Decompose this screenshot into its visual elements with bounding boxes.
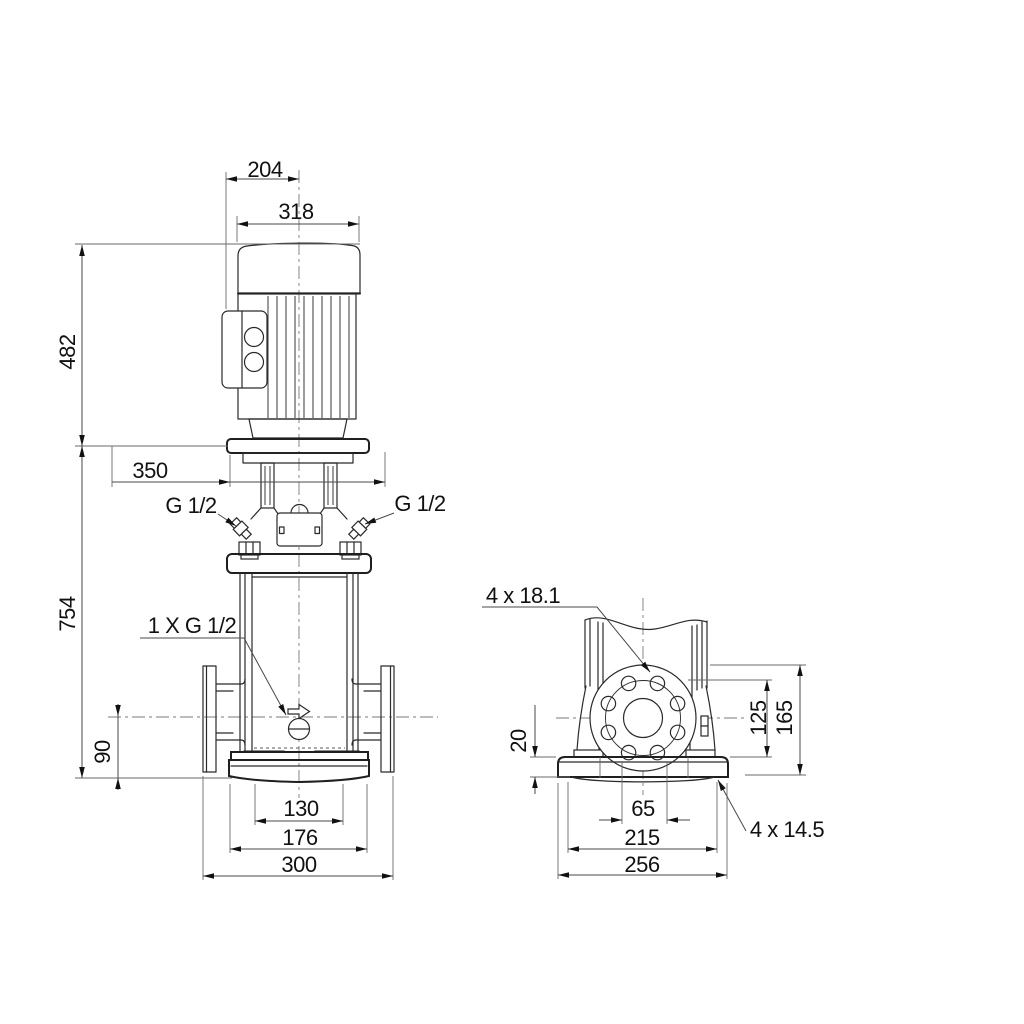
dim-176-text: 176 — [282, 825, 317, 850]
dim-215-text: 215 — [624, 825, 659, 850]
label-base-holes: 4 x 14.5 — [750, 817, 825, 842]
base-top-plate — [231, 752, 368, 760]
side-view: 4 x 18.1 20 125 165 65 215 256 4 x 14.5 — [482, 583, 824, 879]
dim-130-text: 130 — [283, 796, 318, 821]
leader-drain — [244, 638, 286, 715]
flow-arrow-icon — [288, 705, 310, 719]
terminal-box — [222, 311, 267, 388]
stool-lower-plate — [243, 453, 353, 463]
vent-plug-right — [347, 517, 371, 541]
leader-181 — [597, 607, 650, 672]
dim-20-text: 20 — [506, 729, 531, 753]
leader-145 — [718, 780, 746, 831]
dim-300-text: 300 — [281, 852, 316, 877]
dim-754-text: 754 — [55, 596, 80, 631]
leader-g12-left — [218, 514, 236, 526]
drawing-canvas: 204 318 482 350 754 90 130 176 300 G 1/2… — [0, 0, 1024, 1024]
dim-482-text: 482 — [55, 334, 80, 369]
dim-165-text: 165 — [772, 700, 797, 735]
dim-65-text: 65 — [631, 796, 655, 821]
staybolt-nut-right — [340, 542, 361, 559]
front-view: 204 318 482 350 754 90 130 176 300 G 1/2… — [55, 157, 446, 880]
motor — [222, 243, 360, 438]
label-flange-holes: 4 x 18.1 — [486, 583, 561, 608]
motor-fins — [268, 296, 349, 418]
label-g12-right: G 1/2 — [394, 491, 446, 516]
guard-left — [261, 463, 274, 508]
staybolt-nut-left — [239, 542, 260, 559]
label-drain: 1 X G 1/2 — [148, 613, 237, 638]
dim-90-text: 90 — [90, 740, 115, 764]
shaft-end — [291, 505, 308, 514]
dim-350-text: 350 — [132, 458, 167, 483]
leader-g12-right — [365, 513, 394, 524]
label-g12-left: G 1/2 — [165, 493, 217, 518]
pump-dimensional-drawing: 204 318 482 350 754 90 130 176 300 G 1/2… — [0, 0, 1024, 1024]
suction-flange — [203, 666, 245, 772]
dim-318-text: 318 — [278, 199, 313, 224]
guard-right — [324, 463, 337, 508]
dim-256-text: 256 — [624, 852, 659, 877]
motor-flange-adapter — [249, 419, 347, 438]
terminal-box-outline — [222, 311, 267, 388]
drain-plug — [288, 705, 310, 740]
coupling — [277, 505, 322, 547]
guard-clip — [701, 716, 708, 736]
stool-top-plate — [227, 439, 369, 453]
dim-204-text: 204 — [247, 157, 282, 182]
vent-plug-left — [229, 517, 253, 541]
dim-125-text: 125 — [746, 700, 771, 735]
